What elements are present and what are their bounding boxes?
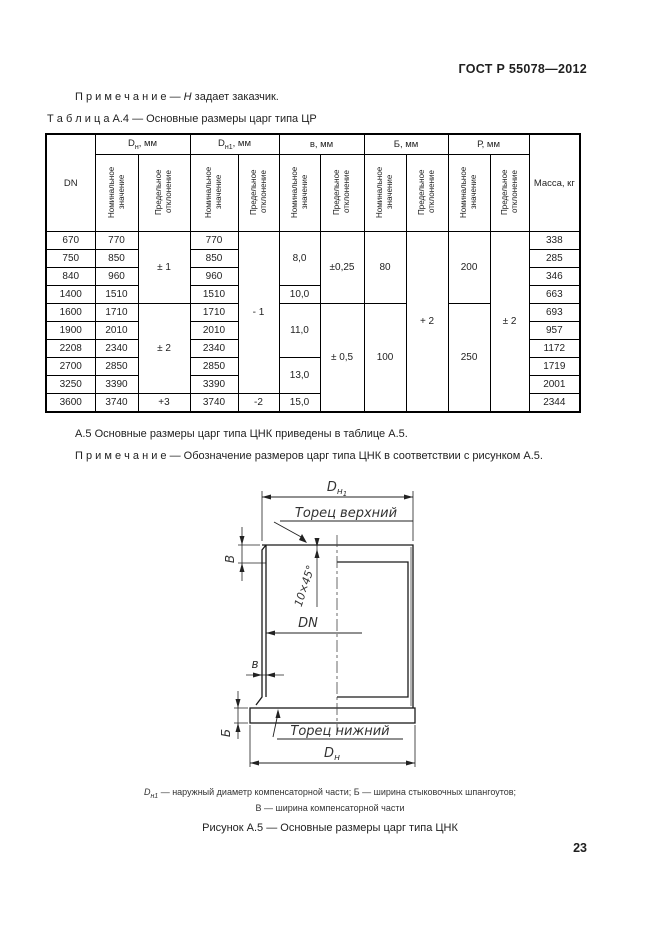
table-cell: 2340 [95,340,138,358]
table-cell: 346 [529,268,580,286]
col-group-header-1: Dн1, мм [190,134,279,155]
table-cell: 100 [364,304,406,413]
group-unit: , мм [400,139,418,150]
subcol-header-nominal-3: Номинальное значение [364,155,406,232]
table-cell: 250 [448,304,490,413]
label-chamfer: 10×45° [292,564,318,609]
table-cell: 1600 [46,304,95,322]
table-cell: 663 [529,286,580,304]
document-page: ГОСТ Р 55078—2012 П р и м е ч а н и е — … [0,0,661,935]
table-cell: 15,0 [279,394,320,413]
table-cell: 338 [529,232,580,250]
table-cell: 3600 [46,394,95,413]
table-cell: 3390 [95,376,138,394]
group-unit: , мм [233,138,251,149]
group-base: D [218,138,225,149]
paragraph-a5: А.5 Основные размеры царг типа ЦНК приве… [75,428,408,440]
label-wall-thickness: в [251,657,258,671]
leader-bottom-face [273,718,277,737]
table-cell: 2340 [190,340,238,358]
table-cell: 3740 [190,394,238,413]
table-cell: ±0,25 [320,232,364,304]
note-variable: Н [184,91,192,103]
subcol-header-nominal-2: Номинальное значение [279,155,320,232]
col-group-header-0: Dн, мм [95,134,190,155]
table-cell: 840 [46,268,95,286]
leader-top-face [274,522,303,538]
subcol-header-nominal-0: Номинальное значение [95,155,138,232]
table-cell: -2 [238,394,279,413]
col-header-mass: Масса, кг [529,134,580,232]
table-cell: 1172 [529,340,580,358]
subcol-header-deviation-2: Предельное отклонение [320,155,364,232]
table-cell: 957 [529,322,580,340]
table-cell: 960 [190,268,238,286]
table-cell: 1719 [529,358,580,376]
inner-ring-edges [337,562,408,697]
doc-code-header: ГОСТ Р 55078—2012 [459,62,587,76]
table-cell: 1710 [190,304,238,322]
group-base: D [128,138,135,149]
group-unit: , мм [482,139,500,150]
table-cell: 2850 [190,358,238,376]
page-number: 23 [573,841,587,855]
note-customer: П р и м е ч а н и е — Н задает заказчик. [75,91,279,103]
table-head: DNDн, ммDн1, ммв, ммБ, ммР, ммМасса, кгН… [46,134,580,232]
table-caption: Т а б л и ц а А.4 — Основные размеры цар… [47,113,317,125]
table-cell: 3390 [190,376,238,394]
table-cell: 693 [529,304,580,322]
col-group-header-2: в, мм [279,134,364,155]
col-group-header-3: Б, мм [364,134,448,155]
table-cell: 960 [95,268,138,286]
table-cell: 3250 [46,376,95,394]
subcol-header-nominal-1: Номинальное значение [190,155,238,232]
subcol-header-deviation-4: Предельное отклонение [490,155,529,232]
table-cell: 10,0 [279,286,320,304]
group-sub: н1 [225,144,233,151]
figure-drawing: Dн1 Торец верхний В 10×45° DN в Б Торец … [160,475,460,780]
table-cell: 2010 [95,322,138,340]
table-cell: 670 [46,232,95,250]
table-cell: 1510 [95,286,138,304]
table-cell: 2850 [95,358,138,376]
note-figure-ref: П р и м е ч а н и е — Обозначение размер… [75,450,543,462]
table-cell: 2700 [46,358,95,376]
subcol-header-deviation-1: Предельное отклонение [238,155,279,232]
label-width-bottom: Б [219,729,233,737]
table-cell: 1510 [190,286,238,304]
label-top-face: Торец верхний [295,506,397,521]
table-cell: 3740 [95,394,138,413]
table-cell: 770 [190,232,238,250]
bottom-flange [250,708,415,723]
table-cell: 750 [46,250,95,268]
table-cell: 770 [95,232,138,250]
group-unit: , мм [315,139,333,150]
outline-left-wall-outer [256,545,266,705]
group-unit: , мм [139,138,157,149]
footnote-var-dn1: Dн1 [144,787,158,797]
table-header-row-groups: DNDн, ммDн1, ммв, ммБ, ммР, ммМасса, кг [46,134,580,155]
table-cell: 80 [364,232,406,304]
size-table: DNDн, ммDн1, ммв, ммБ, ммР, ммМасса, кгН… [45,133,581,413]
table-cell: 1710 [95,304,138,322]
col-header-dn: DN [46,134,95,232]
subcol-header-deviation-0: Предельное отклонение [138,155,190,232]
table-cell: ± 2 [138,304,190,394]
table-cell: - 1 [238,232,279,394]
note-label: П р и м е ч а н и е [75,91,167,103]
table-body: 670770± 1770- 18,0±0,2580+ 2200± 2338750… [46,232,580,413]
table-cell: 8,0 [279,232,320,286]
table-cell: 11,0 [279,304,320,358]
table-a4-wrapper: DNDн, ммDн1, ммв, ммБ, ммР, ммМасса, кгН… [45,133,581,413]
label-dn1: Dн1 [327,480,347,498]
subcol-header-nominal-4: Номинальное значение [448,155,490,232]
label-width-top: В [223,555,237,563]
table-cell: 850 [95,250,138,268]
figure-caption: Рисунок А.5 — Основные размеры царг типа… [45,822,615,834]
table-header-row-subcols: Номинальное значениеПредельное отклонени… [46,155,580,232]
figure-footnote: Dн1 — наружный диаметр компенсаторной ча… [45,786,615,815]
table-cell: + 2 [406,232,448,413]
table-cell: 2208 [46,340,95,358]
table-cell: 1400 [46,286,95,304]
footnote-line2: В — ширина компенсаторной части [255,803,404,813]
table-cell: 1900 [46,322,95,340]
table-cell: 2010 [190,322,238,340]
label-bottom-face: Торец нижний [290,724,389,739]
table-cell: 13,0 [279,358,320,394]
table-cell: 2001 [529,376,580,394]
table-cell: ± 2 [490,232,529,413]
table-cell: +3 [138,394,190,413]
col-group-header-4: Р, мм [448,134,529,155]
subcol-header-deviation-3: Предельное отклонение [406,155,448,232]
outline-top-right [262,545,413,708]
table-cell: 850 [190,250,238,268]
table-row: 670770± 1770- 18,0±0,2580+ 2200± 2338 [46,232,580,250]
table-cell: 200 [448,232,490,304]
label-DN: DN [298,616,318,631]
table-cell: 2344 [529,394,580,413]
table-cell: ± 1 [138,232,190,304]
label-dn-bottom: Dн [324,746,340,763]
table-cell: 285 [529,250,580,268]
table-cell: ± 0,5 [320,304,364,413]
